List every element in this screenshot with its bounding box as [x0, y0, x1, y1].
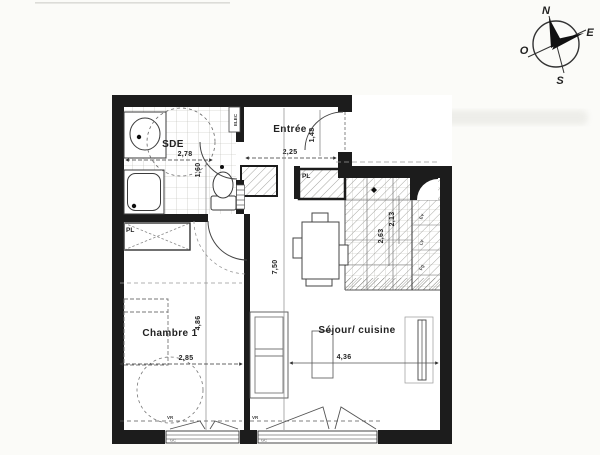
- compass-north-label: N: [542, 5, 551, 17]
- water-heater-unit: [410, 178, 438, 200]
- entree-label: Entrée: [273, 124, 307, 135]
- chambre-shutter-label: VR: [167, 415, 174, 420]
- sejour-depth-dim: 7,50: [272, 260, 279, 275]
- compass-rose: N E S O: [520, 5, 595, 87]
- sde-soil-pipe-dot: [220, 165, 224, 169]
- wall-entry-jamb-bottom: [338, 152, 352, 168]
- sejour-guardrail-label: GC: [261, 438, 267, 443]
- entry-closet-label: PL: [302, 173, 310, 180]
- entree-radiator: [237, 185, 245, 209]
- wall-west: [112, 95, 124, 444]
- elec-panel: ELEC: [229, 107, 240, 132]
- wall-south-right: [378, 430, 452, 444]
- scan-edge-line: [35, 2, 230, 4]
- floor-plan-page: Ev LV Fg PL: [0, 0, 600, 455]
- floor-plan: Ev LV Fg PL: [112, 95, 452, 444]
- kitchen-counter-south: [345, 278, 440, 290]
- sejour-width-dim: 4,36: [337, 354, 352, 361]
- chair-north: [312, 213, 328, 222]
- floor-plan-canvas: Ev LV Fg PL: [0, 0, 600, 455]
- compass-west-label: O: [520, 45, 529, 57]
- sde-shower-drain: [132, 204, 136, 208]
- sideboard: [250, 312, 288, 398]
- chambre-label: Chambre 1: [142, 328, 197, 339]
- chambre-depth-dim: 4,86: [195, 316, 202, 331]
- compass-east-label: E: [586, 27, 594, 39]
- sejour-label: Séjour/ cuisine: [318, 325, 395, 336]
- kitchen-dim-b: 2,63: [378, 229, 385, 244]
- bedroom-closet: PL: [124, 223, 190, 250]
- chair-west: [293, 238, 302, 258]
- wall-south-pier: [240, 430, 257, 444]
- sde-width-dim: 2,78: [178, 151, 193, 158]
- entree-width-dim: 2,25: [283, 149, 298, 156]
- wall-bedroom-divider: [244, 214, 250, 430]
- wall-east: [440, 166, 452, 444]
- chambre-width-dim: 2,85: [179, 355, 194, 362]
- sde-shower: [124, 170, 164, 214]
- elec-panel-label: ELEC: [233, 113, 238, 126]
- kitchen-dim-a: 2,13: [389, 212, 396, 227]
- entree-depth-dim: 1,48: [309, 128, 316, 143]
- wall-closet-jamb: [294, 166, 300, 199]
- chair-south: [306, 279, 332, 286]
- wall-kitchen-north: [338, 166, 452, 178]
- sde-label: SDE: [162, 139, 184, 150]
- wall-entry-jamb-top: [338, 95, 352, 112]
- wall-south-left: [112, 430, 165, 444]
- wall-sde-south: [112, 214, 208, 222]
- sde-depth-dim: 1,60: [195, 163, 202, 178]
- chair-east: [339, 245, 348, 265]
- bedroom-closet-label: PL: [126, 227, 134, 234]
- technical-duct: [241, 166, 277, 196]
- wall-north: [112, 95, 338, 107]
- chambre-guardrail-label: GC: [170, 438, 176, 443]
- sde-washbasin-drain: [137, 135, 141, 139]
- sejour-shutter-label: VR: [252, 415, 259, 420]
- compass-south-label: S: [556, 75, 564, 87]
